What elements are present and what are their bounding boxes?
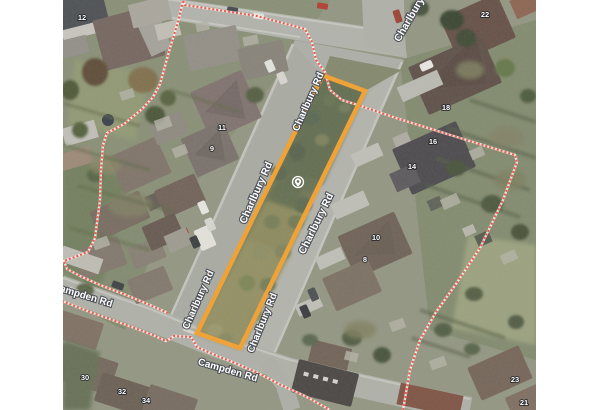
- svg-text:18: 18: [442, 103, 450, 112]
- svg-text:30: 30: [81, 373, 89, 382]
- svg-text:23: 23: [511, 375, 519, 384]
- svg-text:11: 11: [218, 123, 226, 132]
- svg-text:12: 12: [78, 13, 86, 22]
- svg-text:32: 32: [118, 387, 126, 396]
- svg-text:34: 34: [142, 396, 151, 405]
- svg-text:16: 16: [429, 137, 437, 146]
- svg-text:14: 14: [408, 162, 417, 171]
- svg-text:10: 10: [372, 233, 380, 242]
- svg-text:8: 8: [363, 255, 367, 264]
- svg-text:21: 21: [520, 398, 528, 407]
- svg-text:22: 22: [481, 10, 489, 19]
- svg-text:9: 9: [210, 144, 214, 153]
